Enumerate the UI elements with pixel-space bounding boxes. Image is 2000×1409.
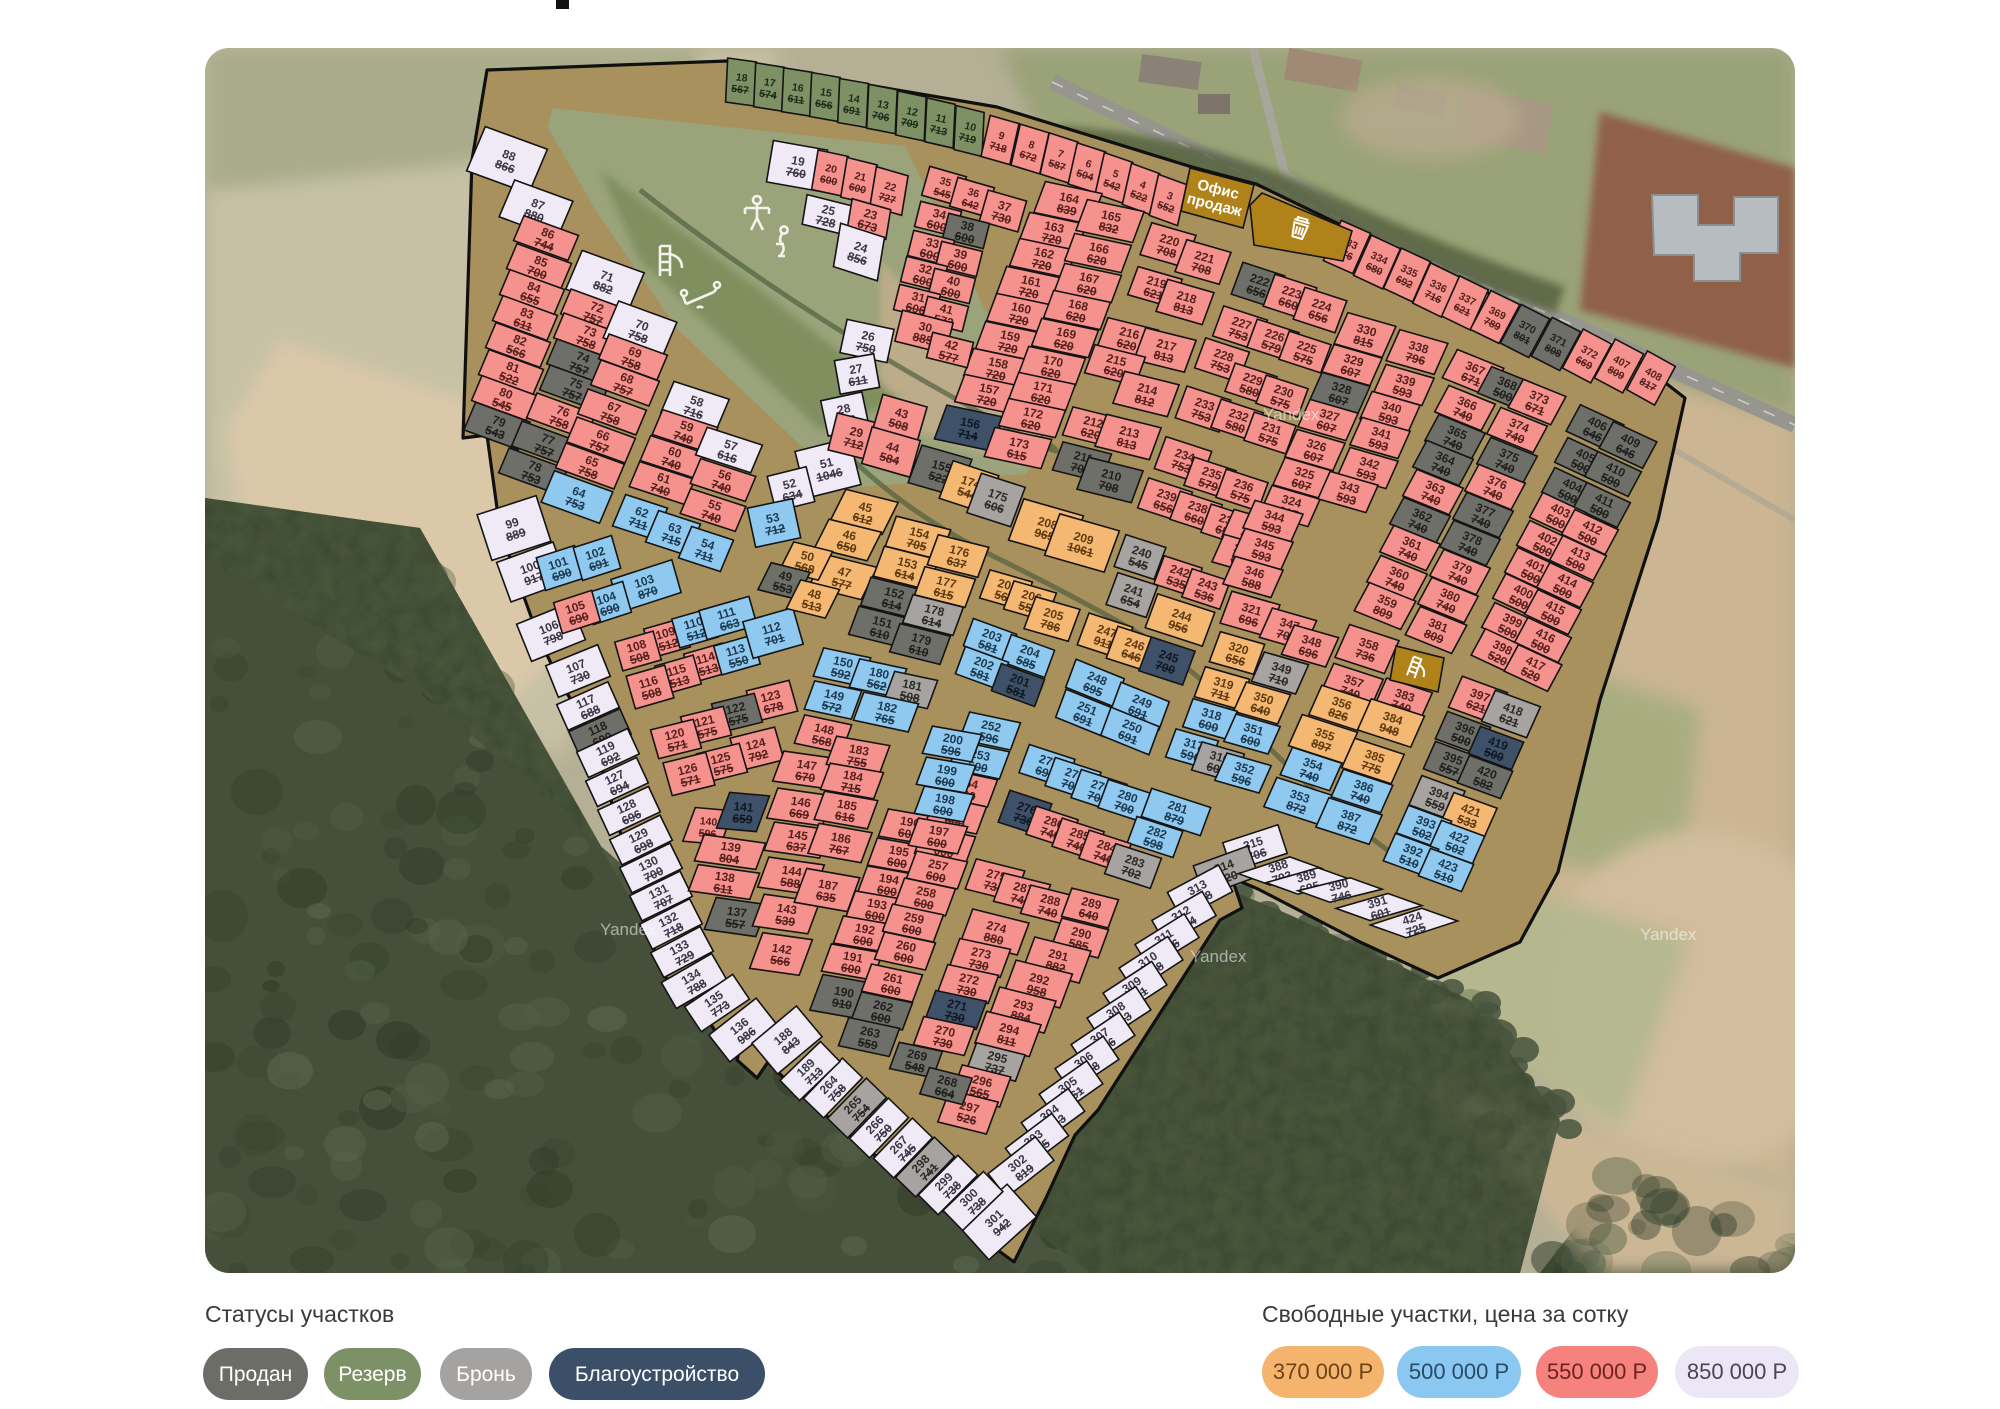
svg-text:137557: 137557 bbox=[724, 904, 748, 933]
svg-text:Yandex: Yandex bbox=[1190, 947, 1247, 966]
svg-text:Свободные участки, цена за сот: Свободные участки, цена за сотку bbox=[1262, 1301, 1629, 1327]
svg-text:143539: 143539 bbox=[774, 901, 798, 930]
svg-text:Yandex: Yandex bbox=[1263, 405, 1320, 424]
svg-text:370 000 Р: 370 000 Р bbox=[1273, 1359, 1373, 1384]
svg-text:Yandex: Yandex bbox=[1640, 925, 1697, 944]
svg-text:Благоустройство: Благоустройство bbox=[575, 1363, 739, 1386]
svg-text:Статусы участков: Статусы участков bbox=[205, 1301, 394, 1327]
svg-text:Yandex: Yandex bbox=[600, 920, 657, 939]
svg-text:850 000 Р: 850 000 Р bbox=[1687, 1359, 1787, 1384]
svg-text:142566: 142566 bbox=[769, 941, 793, 970]
svg-text:145637: 145637 bbox=[785, 827, 809, 856]
svg-text:147670: 147670 bbox=[794, 757, 818, 786]
svg-text:146669: 146669 bbox=[788, 794, 812, 823]
svg-text:Бронь: Бронь bbox=[456, 1363, 516, 1386]
svg-text:141659: 141659 bbox=[732, 799, 755, 827]
svg-text:139804: 139804 bbox=[718, 839, 742, 868]
svg-text:550 000 Р: 550 000 Р bbox=[1547, 1359, 1647, 1384]
svg-text:Резерв: Резерв bbox=[338, 1363, 406, 1386]
svg-text:Продан: Продан bbox=[219, 1363, 293, 1386]
svg-text:500 000 Р: 500 000 Р bbox=[1409, 1359, 1509, 1384]
